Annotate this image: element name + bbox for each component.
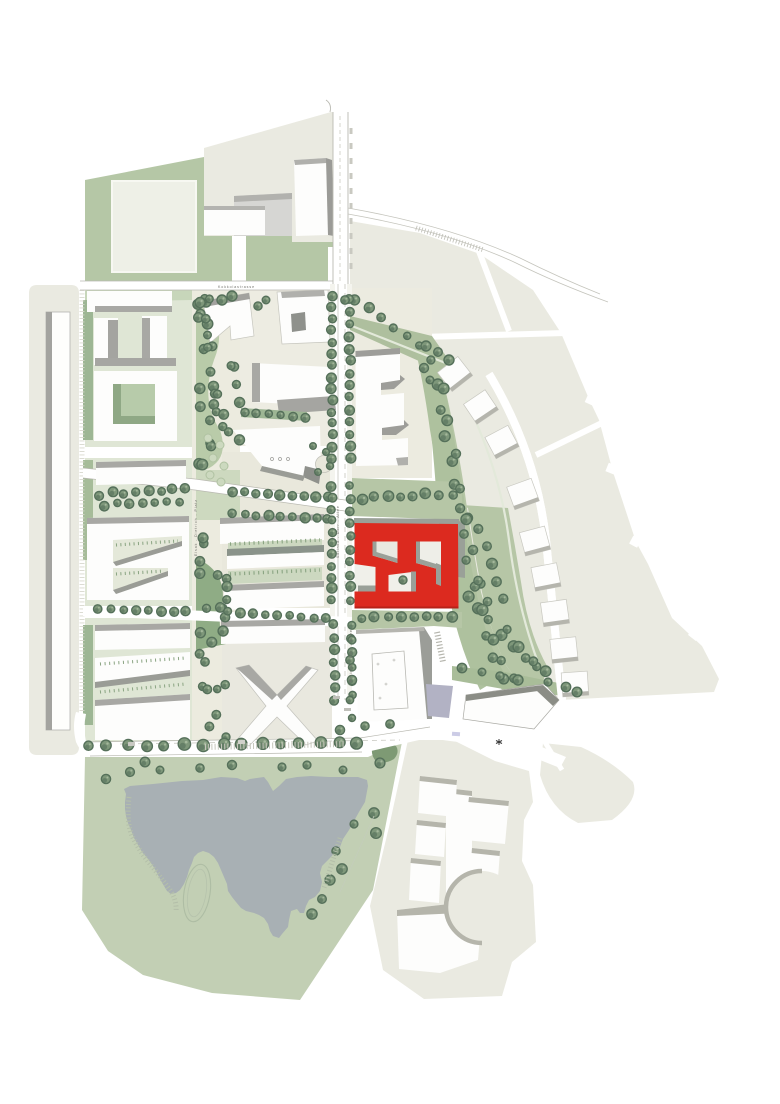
svg-text:Pelinka - Dorr - Allee: Pelinka - Dorr - Allee — [349, 629, 353, 682]
svg-text:Solinka - Dorr - Allee: Solinka - Dorr - Allee — [336, 505, 340, 558]
svg-text:Elsak - Dietrich - Platz: Elsak - Dietrich - Platz — [194, 499, 198, 556]
svg-text:Kokkolastrasse: Kokkolastrasse — [218, 285, 255, 289]
